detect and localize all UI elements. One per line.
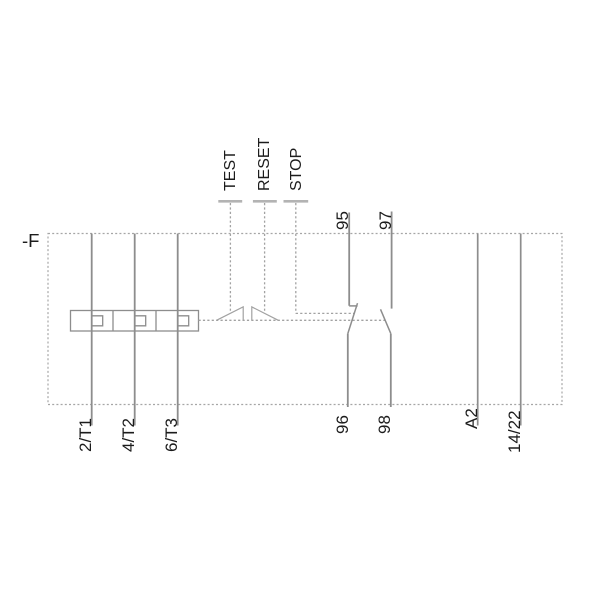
overload-relay-schematic: -F TEST RESET STOP 95 97 2/T1 4/T2 6/T3 …: [0, 0, 600, 600]
device-designation-label: -F: [22, 232, 39, 251]
test-button-label: TEST: [223, 150, 239, 191]
device-boundary-box: [48, 234, 562, 405]
phase-conductors: [92, 234, 178, 426]
terminal-label-95: 95: [334, 211, 351, 230]
reset-button-label: RESET: [257, 138, 273, 191]
terminal-label-2t1: 2/T1: [77, 418, 94, 452]
terminal-label-14-22: 14/22: [506, 410, 523, 453]
terminal-label-4t2: 4/T2: [120, 418, 137, 452]
no-contact-symbol: [381, 212, 392, 408]
aux-conductors: [478, 234, 521, 426]
mechanical-links: [199, 203, 386, 320]
stop-button-label: STOP: [289, 148, 305, 191]
terminal-label-6t3: 6/T3: [163, 418, 180, 452]
terminal-label-96: 96: [334, 415, 351, 434]
schematic-drawing: [0, 0, 600, 600]
nc-contact-symbol: [348, 213, 358, 408]
terminal-label-98: 98: [376, 415, 393, 434]
terminal-label-a2: A2: [463, 408, 480, 429]
terminal-label-97: 97: [377, 211, 394, 230]
